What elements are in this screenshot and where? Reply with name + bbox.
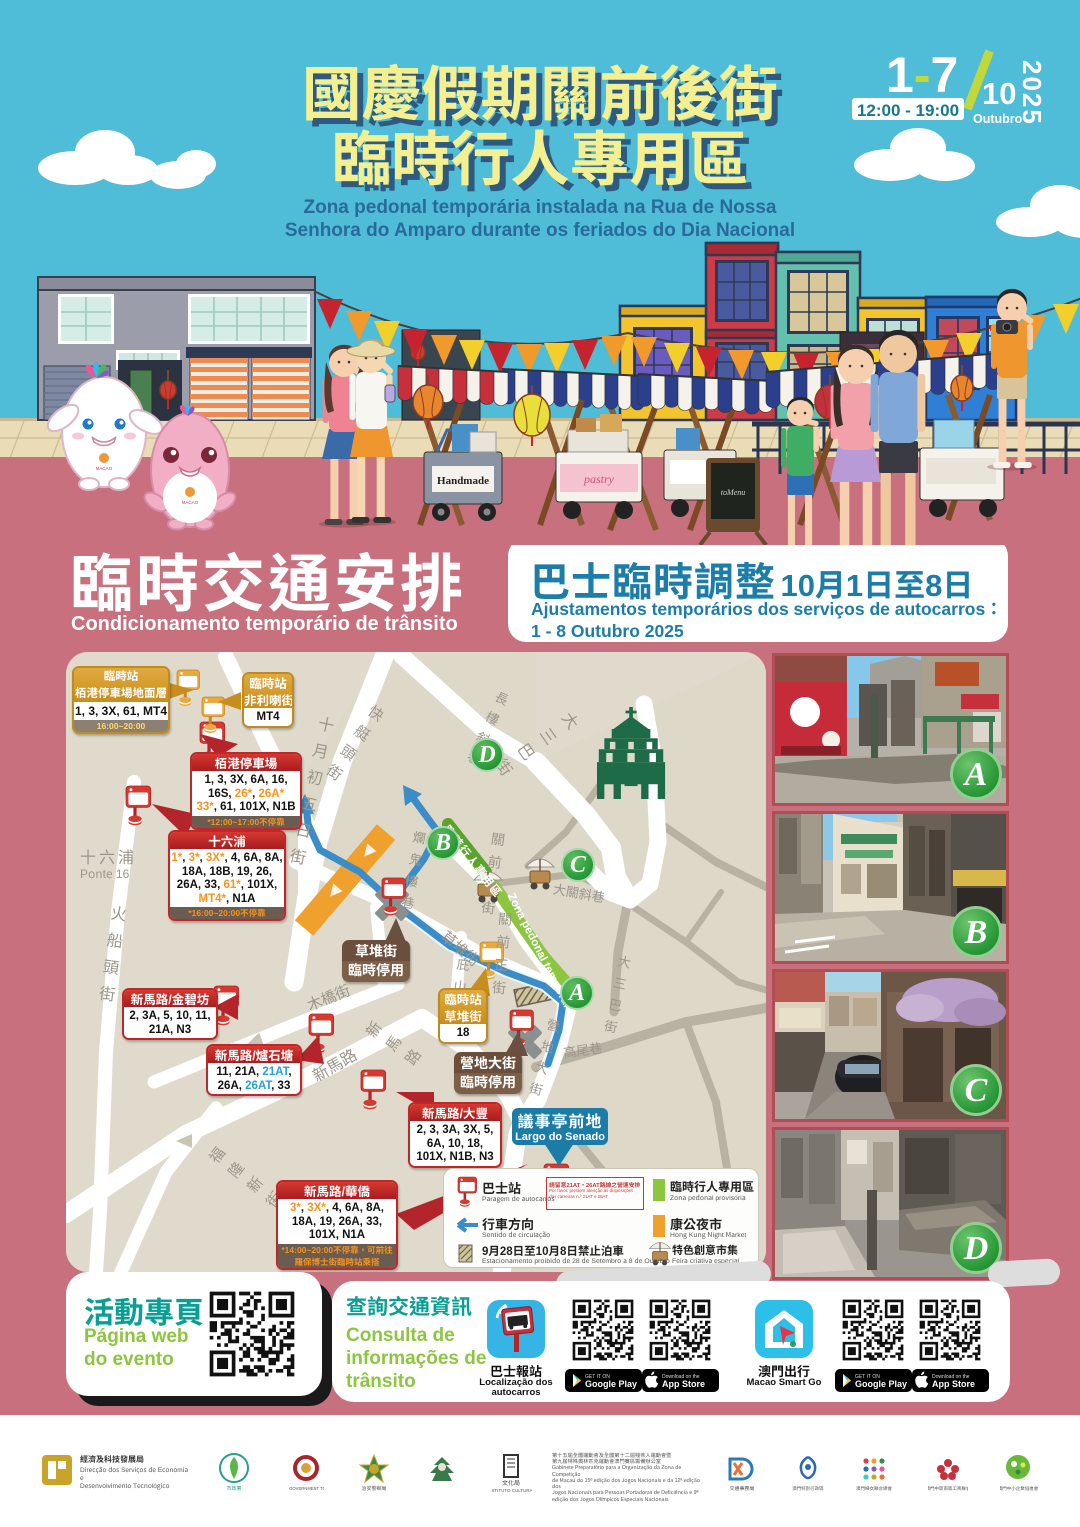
svg-text:交通事務局: 交通事務局 bbox=[729, 1485, 754, 1492]
svg-text:App Store: App Store bbox=[932, 1379, 975, 1389]
svg-text:Google Play: Google Play bbox=[855, 1379, 907, 1389]
svg-text:MACAO: MACAO bbox=[96, 466, 113, 472]
svg-text:App Store: App Store bbox=[662, 1379, 705, 1389]
svg-text:pastry: pastry bbox=[583, 472, 615, 486]
svg-text:澳門中區南區工商聯會: 澳門中區南區工商聯會 bbox=[928, 1486, 968, 1492]
svg-text:市政署: 市政署 bbox=[226, 1485, 241, 1492]
svg-text:Google Play: Google Play bbox=[585, 1379, 637, 1389]
svg-text:文化局: 文化局 bbox=[502, 1478, 520, 1487]
svg-text:治安警察局: 治安警察局 bbox=[361, 1485, 386, 1492]
svg-text:toMenu: toMenu bbox=[721, 488, 745, 497]
svg-text:澳門中小企業協進會: 澳門中小企業協進會 bbox=[1000, 1486, 1039, 1492]
svg-text:MACAO GOVERNMENT TOURISM: MACAO GOVERNMENT TOURISM bbox=[288, 1486, 324, 1492]
svg-text:MACAO: MACAO bbox=[182, 500, 199, 506]
svg-text:INSTITUTO CULTURAL: INSTITUTO CULTURAL bbox=[492, 1488, 532, 1493]
svg-text:澳門婦女聯合總會: 澳門婦女聯合總會 bbox=[856, 1486, 892, 1492]
svg-text:Handmade: Handmade bbox=[437, 475, 489, 487]
svg-text:澳門特別行政區: 澳門特別行政區 bbox=[792, 1486, 824, 1492]
